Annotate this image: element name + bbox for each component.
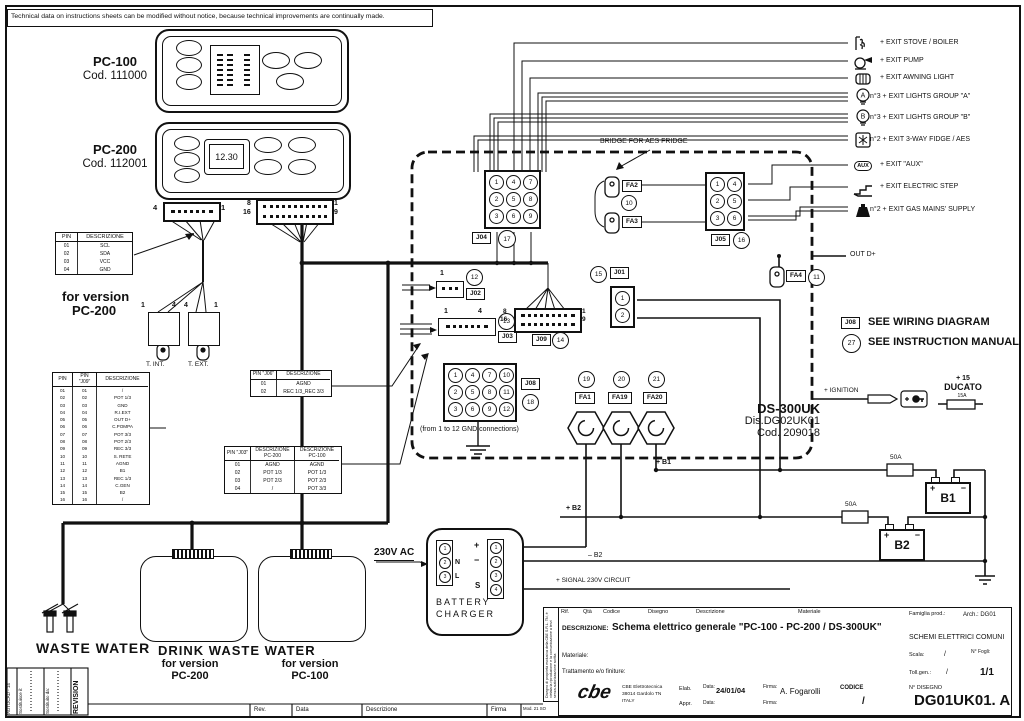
scala-label: Scala:	[909, 653, 924, 659]
table-cell: 01	[225, 461, 251, 469]
connector-j01: 12	[610, 286, 635, 328]
table-cell: 6	[727, 211, 742, 226]
table-cell: 01	[53, 387, 73, 394]
table-cell: 09	[53, 445, 73, 452]
pc200-code: Cod. 112001	[72, 158, 158, 170]
table-cell: S. RETE	[97, 453, 148, 460]
pc100-name: PC-100	[80, 55, 150, 69]
table-cell: 03	[73, 402, 97, 409]
table-cell: 02	[53, 394, 73, 401]
table-cell: 01	[251, 380, 277, 388]
pc100-button[interactable]	[176, 57, 202, 73]
connector-j08: 147102581136912	[443, 363, 517, 422]
table-cell: C.POMPA	[97, 423, 148, 430]
fa19-label: FA19	[608, 392, 632, 404]
pc200-clock: 12.30	[204, 139, 250, 175]
table-cell: POT 3/3	[295, 485, 339, 493]
tank1-version: for version	[150, 659, 230, 671]
battery-b2: + B2 −	[879, 529, 925, 561]
table-cell: 1	[448, 368, 463, 383]
j09-ref-circle: 14	[552, 332, 569, 349]
fa3-label: FA3	[622, 216, 642, 228]
table-cell: SDA	[78, 250, 132, 258]
aux-icon: AUX	[851, 157, 875, 175]
j05-ref-circle: 16	[733, 232, 750, 249]
j08-ref-circle: 18	[522, 394, 539, 411]
connector-j03	[438, 318, 496, 336]
table-cell: 07	[73, 431, 97, 438]
table-cell: 04	[56, 266, 78, 274]
data-value: 24/01/04	[716, 687, 745, 695]
company-addr2: ITALY	[622, 699, 635, 704]
pin-dots	[521, 314, 575, 317]
col-codice: Codice	[603, 610, 620, 616]
led-bar	[244, 52, 250, 86]
autocad-note: AUTOCAD - 14	[7, 669, 12, 714]
data-col: Data	[296, 707, 309, 713]
j02-label: J02	[466, 288, 485, 300]
table-cell: POT 2/3	[251, 477, 295, 485]
firma-col: Firma	[491, 707, 506, 713]
j02-ref-circle: 12	[466, 269, 483, 286]
table-cell: 3	[490, 570, 502, 582]
table-cell: AGND	[295, 461, 339, 469]
plus-b1-label: + B1	[656, 459, 671, 466]
table-cell: 10	[499, 368, 514, 383]
minus-sign: −	[961, 484, 966, 493]
see-wiring-ref: J08	[841, 317, 860, 329]
j04-label: J04	[472, 232, 491, 244]
charger-s-label: S	[475, 582, 480, 590]
pc100-button[interactable]	[176, 40, 202, 56]
tint-pin4: 4	[172, 302, 176, 309]
table-cell: 1	[490, 542, 502, 554]
exit-label: + EXIT STOVE / BOILER	[880, 39, 959, 46]
table-cell: 03	[225, 477, 251, 485]
exit-label: + EXIT ELECTRIC STEP	[880, 183, 958, 190]
codice-label: CODICE	[840, 685, 863, 691]
table-cell: 16	[73, 496, 97, 503]
descr-value: Schema elettrico generale "PC-100 - PC-2…	[612, 623, 882, 634]
exit-label: + EXIT AWNING LIGHT	[880, 74, 954, 81]
text-pin1: 1	[214, 302, 218, 309]
pin-dots	[263, 215, 327, 218]
pc200-button[interactable]	[254, 159, 282, 175]
exit-label: n°3 + EXIT LIGHTS GROUP "A"	[870, 93, 970, 100]
plus-sign: +	[884, 531, 889, 540]
table-cell: 3	[439, 571, 451, 583]
charger-plus-label: +	[474, 541, 479, 550]
table-cell: 15	[73, 489, 97, 496]
table-cell: 14	[73, 482, 97, 489]
table-cell: POT 1/3	[97, 394, 148, 401]
col-materiale: Materiale	[798, 610, 821, 616]
plus-b2-label: + B2	[566, 505, 581, 512]
j09c-pin-br: 9	[582, 317, 586, 324]
scala-value: /	[944, 651, 946, 658]
pc200-name: PC-200	[80, 143, 150, 157]
ducato-fuse-label: 15A	[944, 394, 980, 399]
ducato-label: DUCATO	[934, 383, 992, 392]
table-cell: REC 3/3	[97, 445, 148, 452]
pin-dots	[446, 325, 488, 328]
pin-dots	[521, 323, 575, 326]
pc200-button[interactable]	[288, 137, 316, 153]
charger-n-label: N	[455, 559, 460, 566]
table-cell: 12	[73, 467, 97, 474]
rev-col: Rev.	[254, 707, 266, 713]
table-cell: 8	[523, 192, 538, 207]
table-cell: C.GEN	[97, 482, 148, 489]
pc100-display	[210, 45, 260, 95]
exit-label: n°2 + EXIT 3-WAY FIDGE / AES	[870, 136, 970, 143]
table-cell: 4	[490, 584, 502, 596]
device-drawing: Dis.DG02UK01	[720, 416, 820, 428]
table-cell: 01	[56, 242, 78, 250]
t-ext-label: T. EXT.	[188, 362, 209, 369]
table-cell: 02	[56, 250, 78, 258]
pc100-button[interactable]	[276, 73, 304, 90]
ndisegno-value: DG01UK01. A	[914, 693, 1010, 709]
table-cell: 07	[53, 431, 73, 438]
connector-j05: 142536	[705, 172, 745, 231]
table-cell: 04	[225, 485, 251, 493]
fa4-label: FA4	[786, 270, 806, 282]
table-cell: 11	[53, 460, 73, 467]
electric-step-icon	[851, 179, 875, 197]
svg-text:B: B	[861, 113, 866, 120]
table-cell: VCC	[78, 258, 132, 266]
t-int-connector	[148, 312, 180, 346]
company-addr1: 38014 Gardolo TN	[622, 692, 661, 697]
fuse-50a-b1: 50A	[890, 455, 902, 462]
table-cell: 11	[499, 385, 514, 400]
ndisegno-label: N° DISEGNO	[909, 686, 942, 692]
table-cell: GND	[78, 266, 132, 274]
table-cell: 06	[73, 423, 97, 430]
cbe-logo: cbe	[576, 683, 613, 703]
arch-label: Arch.: DG01	[963, 612, 996, 618]
plus-sign: +	[930, 484, 935, 493]
table-cell: 2	[489, 192, 504, 207]
j09c-pin-bl: 16	[500, 317, 507, 324]
ignition-label: + IGNITION	[824, 388, 859, 395]
table-cell: 04	[53, 409, 73, 416]
table-cell: POT 2/3	[97, 438, 148, 445]
codice-value: /	[862, 697, 865, 708]
table-cell: 2	[710, 194, 725, 209]
pin-table-i2c: PIN DESCRIZIONE 01SCL02SDA03VCC04GND	[55, 232, 133, 275]
conn4-pin-left: 4	[153, 204, 157, 212]
minus-sign: −	[915, 531, 920, 540]
table-cell: 05	[53, 416, 73, 423]
j04-ref-circle: 17	[498, 230, 516, 248]
table-cell: 6	[506, 209, 521, 224]
b1-text: B1	[940, 491, 955, 505]
table-cell: B1	[97, 467, 148, 474]
table-cell: 8	[482, 385, 497, 400]
battery-b1: + B1 −	[925, 482, 971, 514]
firma-label: Firma:	[763, 685, 777, 690]
exit-label: + EXIT "AUX"	[880, 161, 923, 168]
schemi-label: SCHEMI ELETTRICI COMUNI	[909, 634, 1004, 641]
table-cell: GND	[97, 402, 148, 409]
fa1-label: FA1	[575, 392, 595, 404]
j09c-pin-tl: 8	[503, 309, 507, 316]
see-manual-note: SEE INSTRUCTION MANUAL	[868, 337, 1019, 349]
disclaimer-box: Technical data on instructions sheets ca…	[7, 9, 433, 27]
device-code: Cod. 209018	[720, 428, 820, 440]
pin-dots	[442, 287, 458, 290]
table-cell: 11	[73, 460, 97, 467]
table-cell: 03	[53, 402, 73, 409]
j03-pin4: 4	[478, 308, 482, 315]
see-wiring-note: SEE WIRING DIAGRAM	[868, 317, 990, 329]
signal-label: + SIGNAL 230V CIRCUIT	[556, 578, 630, 585]
gnd-note: (from 1 to 12 GND connections)	[420, 426, 519, 433]
table-cell: 08	[53, 438, 73, 445]
charger-minus-label: −	[474, 556, 479, 565]
j02-pin1: 1	[440, 270, 444, 277]
awning-light-icon	[851, 69, 875, 87]
table-cell: 4	[727, 177, 742, 192]
pc100-button[interactable]	[176, 74, 202, 90]
table-cell: 4	[506, 175, 521, 190]
tank2-version: for version	[270, 659, 350, 671]
fogli-label: N° Fogli:	[971, 650, 990, 655]
table-cell: 09	[73, 445, 97, 452]
table-cell: 02	[251, 388, 277, 396]
connector-j04: 147258369	[484, 170, 541, 229]
drink-tank-pc100	[258, 556, 366, 642]
pin-dots	[263, 205, 327, 208]
table-cell: 2	[490, 556, 502, 568]
pin-table-j06: PIN "J06" DESCRIZIONE 01AGND02REC 1/3_RE…	[250, 370, 332, 397]
sostituito-label: Sostituito da:	[46, 669, 51, 714]
conn4-pin-right: 1	[221, 204, 225, 212]
table-cell: AGND	[251, 461, 295, 469]
pc100-code: Cod. 111000	[72, 70, 158, 82]
famiglia-label: Famiglia prod.:	[909, 612, 945, 618]
b2-text: B2	[894, 538, 909, 552]
drink-waste-label: DRINK WASTE WATER	[158, 644, 316, 658]
tint-pin1: 1	[141, 302, 145, 309]
text-pin4: 4	[184, 302, 188, 309]
led-bar	[217, 52, 223, 86]
table-cell: 1	[439, 543, 451, 555]
pc200-button[interactable]	[288, 159, 316, 175]
table-cell: 7	[482, 368, 497, 383]
device-name: DS-300UK	[720, 402, 820, 416]
table-cell: 15	[53, 489, 73, 496]
table-cell: 6	[465, 402, 480, 417]
table-cell: 2	[448, 385, 463, 400]
conn16-pin-br: 9	[334, 209, 338, 216]
table-cell: REC 1/3_REC 3/3	[277, 388, 330, 396]
table-cell: 12	[499, 402, 514, 417]
toll-label: Toll.gen.:	[909, 671, 931, 677]
j01-ref-circle: 15	[590, 266, 607, 283]
fa2-label: FA2	[622, 180, 642, 192]
t-ext-connector	[188, 312, 220, 346]
charger-label-2: CHARGER	[436, 610, 495, 619]
table-cell: 1	[710, 177, 725, 192]
firma-label2: Firma:	[763, 701, 777, 706]
table-cell: 16	[53, 496, 73, 503]
fa1-ref-circle: 19	[578, 371, 595, 388]
pc200-button[interactable]	[174, 136, 200, 151]
firma-value: A. Fogarolli	[780, 688, 820, 696]
table-cell: 9	[482, 402, 497, 417]
t-int-label: T. INT.	[146, 362, 164, 369]
table-cell: 12	[53, 467, 73, 474]
company-name: CBE Elettrotecnica	[622, 685, 662, 690]
table-cell: B2	[97, 489, 148, 496]
pc200-button[interactable]	[174, 152, 200, 167]
pc100-button[interactable]	[262, 52, 290, 69]
table-cell: 13	[73, 475, 97, 482]
table-cell: REC 1/3	[97, 475, 148, 482]
table-cell: 01	[73, 387, 97, 394]
revision-title: REVISION	[73, 669, 80, 714]
table-cell: 02	[225, 469, 251, 477]
fuse-50a-b2: 50A	[845, 502, 857, 509]
pin-dots	[171, 210, 213, 213]
table-cell: 14	[53, 482, 73, 489]
table-cell: 10	[53, 453, 73, 460]
table-cell: POT 1/3	[251, 469, 295, 477]
table-cell: AGND	[277, 380, 330, 388]
pin-table-j03: PIN "J03" DESCRIZIONE PC-200 DESCRIZIONE…	[224, 446, 342, 494]
fa20-label: FA20	[643, 392, 667, 404]
table-cell: 08	[73, 438, 97, 445]
col-rif: Rif.	[561, 610, 569, 616]
table-cell: 02	[73, 394, 97, 401]
j05-label: J05	[711, 234, 730, 246]
table-cell: /	[97, 496, 148, 503]
table-cell: 3	[489, 209, 504, 224]
fa2-ref-circle: 10	[621, 195, 637, 211]
panel-connector-16pin	[256, 199, 334, 225]
table-cell: 9	[523, 209, 538, 224]
stove-icon	[851, 34, 875, 52]
fa20-ref-circle: 21	[648, 371, 665, 388]
toll-value: /	[946, 669, 948, 676]
mod-label: Mod. 21 SO	[523, 707, 546, 712]
table-cell: 4	[465, 368, 480, 383]
elab-label: Elab.	[679, 687, 692, 693]
fa19-ref-circle: 20	[613, 371, 630, 388]
charger-dc-connector: 1234	[487, 539, 504, 599]
svg-text:A: A	[861, 92, 866, 99]
table-cell: POT 2/3	[295, 477, 339, 485]
table-cell: 06	[53, 423, 73, 430]
table-cell: OUT D+	[97, 416, 148, 423]
pc200-button[interactable]	[174, 168, 200, 183]
led-bar	[227, 52, 233, 86]
conn16-pin-tr: 1	[334, 200, 338, 207]
table-cell: 10	[73, 453, 97, 460]
exit-label: + EXIT PUMP	[880, 57, 924, 64]
trattamento-label: Trattamento e/o finiture:	[562, 669, 625, 675]
connector-j02	[436, 281, 464, 298]
pc100-button[interactable]	[294, 52, 322, 69]
table-cell: 03	[56, 258, 78, 266]
fogli-value: 1/1	[980, 668, 994, 679]
for-version-label: for version	[62, 290, 129, 304]
appr-label: Appr.	[679, 702, 692, 708]
table-cell: 1	[615, 291, 630, 306]
exit-label: n°3 + EXIT LIGHTS GROUP "B"	[870, 114, 970, 121]
see-manual-ref: 27	[842, 334, 861, 353]
ac-label: 230V AC	[374, 548, 414, 561]
conn16-pin-bl: 16	[243, 209, 251, 216]
table-cell: SCL	[78, 242, 132, 250]
col-descrizione: Descrizione	[696, 610, 725, 616]
table-cell: /	[251, 485, 295, 493]
table-cell: AGND	[97, 460, 148, 467]
bridge-note: BRIDGE FOR AES FRIDGE	[600, 138, 688, 145]
j01-label: J01	[610, 267, 629, 279]
disclaimer-text: Technical data on instructions sheets ca…	[11, 13, 385, 20]
charger-label-1: BATTERY	[436, 598, 491, 607]
tank-sensor-cap	[290, 549, 332, 559]
exit-label: n°2 + EXIT GAS MAINS' SUPPLY	[870, 206, 975, 213]
conn16-pin-tl: 8	[247, 200, 251, 207]
table-cell: 2	[615, 308, 630, 323]
table-cell: 13	[53, 475, 73, 482]
tank-sensor-cap	[172, 549, 214, 559]
waste-water-label: WASTE WATER	[36, 641, 150, 656]
pc200-button[interactable]	[254, 137, 282, 153]
proprietary-note: Disegno di proprietà esclusiva della CBE…	[546, 610, 556, 698]
tank1-model: PC-200	[150, 671, 230, 683]
table-cell: 5	[506, 192, 521, 207]
table-cell: R.I.EXT	[97, 409, 148, 416]
j08-label: J08	[521, 378, 540, 390]
table-cell: 5	[465, 385, 480, 400]
sostituisce-label: Sostituisce il:	[19, 669, 24, 714]
j09-label: J09	[532, 334, 551, 346]
table-cell: 04	[73, 409, 97, 416]
descrizione-col: Descrizione	[366, 707, 397, 713]
data-label2: Data:	[703, 701, 715, 706]
table-cell: 5	[727, 194, 742, 209]
data-label: Data:	[703, 685, 715, 690]
charger-ac-connector: 123	[436, 540, 453, 586]
table-cell: POT 3/3	[97, 431, 148, 438]
charger-l-label: L	[455, 573, 459, 580]
table-cell: 05	[73, 416, 97, 423]
table-cell: 2	[439, 557, 451, 569]
col-qta: Qtà	[583, 610, 592, 616]
tank2-model: PC-100	[270, 671, 350, 683]
table-cell: POT 1/3	[295, 469, 339, 477]
descr-label: DESCRIZIONE:	[562, 626, 609, 633]
table-cell: /	[97, 387, 148, 394]
out-d-label: OUT D+	[850, 251, 876, 258]
table-cell: 7	[523, 175, 538, 190]
pc200-clock-value: 12.30	[209, 144, 244, 169]
j09c-pin-tr: 1	[582, 309, 586, 316]
pin-table-j09: PIN PIN "J09" DESCRIZIONE 0101/0202POT 1…	[52, 372, 150, 505]
col-disegno: Disegno	[648, 610, 668, 616]
j03-pin1: 1	[444, 308, 448, 315]
fa4-ref-circle: 11	[808, 269, 825, 286]
schematic-sheet: Technical data on instructions sheets ca…	[0, 0, 1024, 721]
connector-j09	[514, 308, 582, 333]
table-cell: 3	[710, 211, 725, 226]
